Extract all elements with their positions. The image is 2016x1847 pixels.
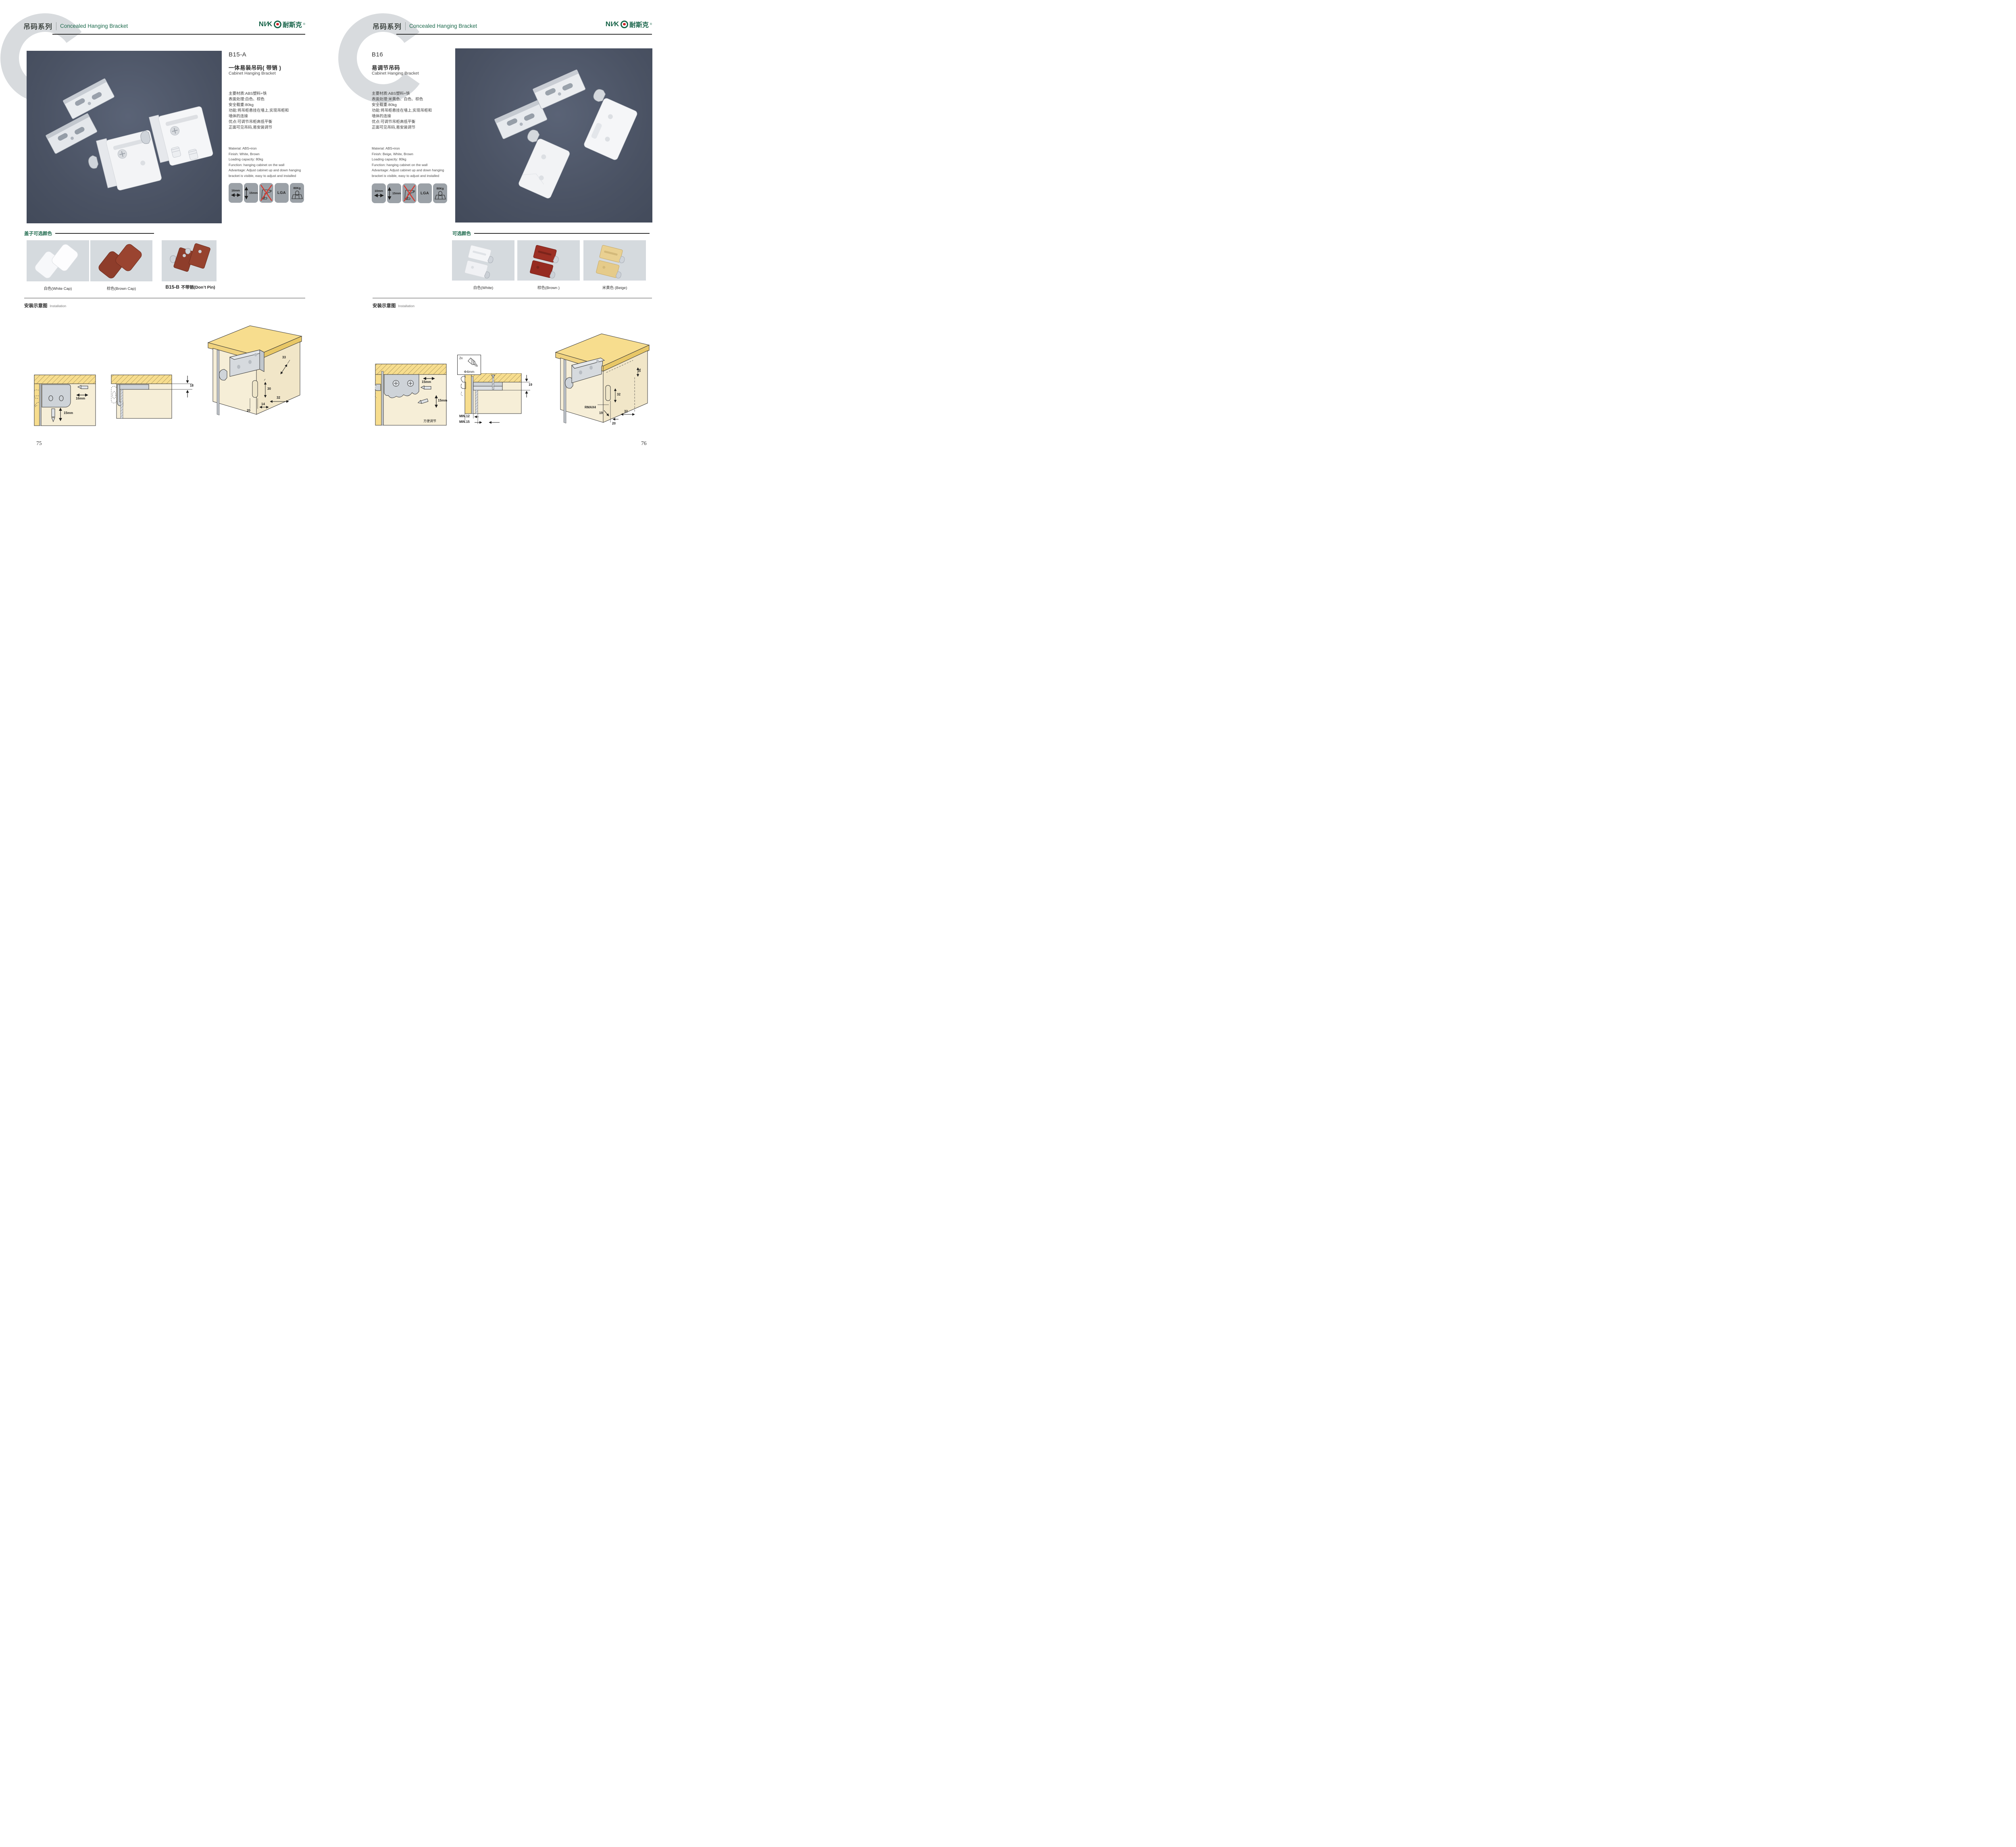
page-number: 76 (641, 440, 647, 447)
spec-line: bracket is visible, easy to adjust and i… (372, 173, 444, 179)
dim-label: 15mm (422, 380, 431, 384)
color-options-heading: 可选颜色 (452, 230, 650, 237)
dim-label: 19 (599, 411, 603, 415)
install-diagram-2: 19 MIN.12 MIN.15 (461, 373, 544, 426)
diagram-art (111, 372, 204, 422)
spec-line: 墙体的连接 (372, 114, 432, 119)
installation-heading: 安装示意图 Installation (373, 302, 414, 309)
install-diagram-1: 16mm 15mm (34, 371, 96, 427)
dim-label: 32 (624, 410, 628, 413)
specs-en: Material: ABS+iron Finish: Beige, White,… (372, 146, 444, 179)
spec-line: 表面处理:白色、棕色 (229, 97, 289, 102)
panel-width-icon: 16mm (229, 183, 243, 203)
load-capacity-icon: 80Kg (433, 183, 447, 203)
header-separator (405, 22, 406, 30)
screw-spec-box: 2x Φ4mm (457, 355, 481, 375)
brand-logo: NI∕K 耐斯克 ® (259, 19, 305, 29)
spec-line: bracket is visible, easy to adjust and i… (229, 173, 301, 179)
lga-cert-icon: LGA (275, 183, 289, 203)
spec-line: 优点:可调节吊柜高低平衡 (372, 119, 432, 125)
panel-width-label: 10mm (375, 189, 383, 193)
spec-line: 表面处理:米黄色、白色、棕色 (372, 97, 432, 102)
installation-heading: 安装示意图 Installation (24, 302, 66, 309)
section-divider (373, 298, 652, 298)
swatch-code: B15-B (165, 284, 179, 290)
swatch-caption: 米黄色 (Beige) (583, 285, 646, 290)
diagram-art (34, 371, 96, 427)
specs-cn: 主要材质:ABS塑料+铁 表面处理:米黄色、白色、棕色 安全载重:80kg 功能… (372, 91, 432, 131)
white-bracket-art (452, 240, 514, 281)
load-label: 80Kg (294, 186, 301, 190)
installation-cn: 安装示意图 (373, 302, 396, 309)
spec-line: 安全载重:80kg (229, 102, 289, 108)
spec-line: 正面可见吊码,易安装调节 (229, 125, 289, 131)
heading-rule (55, 233, 154, 233)
color-heading-label: 可选颜色 (452, 230, 471, 237)
heading-rule (474, 233, 650, 233)
product-code: B16 (372, 51, 383, 58)
spec-line: Loading capacity: 80kg (372, 157, 444, 162)
series-title-en: Concealed Hanging Bracket (60, 23, 128, 29)
diagram-art (461, 373, 544, 426)
lga-label: LGA (277, 191, 286, 195)
product-title-en: Cabinet Hanging Bracket (229, 71, 276, 76)
spec-line: Function: hanging cabinet on the wall (372, 162, 444, 168)
specs-cn: 主要材质:ABS塑料+铁 表面处理:白色、棕色 安全载重:80kg 功能:将吊柜… (229, 91, 289, 131)
swatch-caption-b15b: B15-B不带销(Don’t Pin) (157, 284, 223, 290)
white-cap-art (27, 240, 89, 281)
swatch-b15b (162, 240, 217, 281)
logo-target-icon (274, 21, 281, 28)
page-header: 吊码系列 Concealed Hanging Bracket (23, 21, 128, 31)
spec-line: 优点:可调节吊柜高低平衡 (229, 119, 289, 125)
red-cross-icon (259, 183, 273, 203)
product-photo-art (27, 51, 222, 223)
dim-label: 32 (617, 393, 621, 396)
feature-icons: 10mm 15mm LGA 80Kg (372, 183, 447, 203)
dim-label: 15mm (438, 399, 447, 402)
dim-label: 20 (247, 409, 250, 412)
dim-label: 19 (529, 383, 532, 387)
swatch-caption: 棕色(Brown ) (517, 285, 580, 290)
lga-label: LGA (421, 191, 429, 196)
spec-line: 功能:将吊柜悬挂在墙上,实现吊柜和 (229, 108, 289, 114)
series-title-cn: 吊码系列 (373, 21, 402, 31)
panel-width-label: 16mm (231, 189, 240, 192)
header-rule (396, 34, 652, 35)
swatch-white (452, 240, 514, 281)
horizontal-arrow-icon (230, 193, 242, 197)
page-left: 吊码系列 Concealed Hanging Bracket NI∕K 耐斯克 … (0, 0, 338, 462)
product-title-en: Cabinet Hanging Bracket (372, 71, 419, 76)
spec-line: 墙体的连接 (229, 114, 289, 119)
install-diagram-1: 15mm 15mm 方便调节 (375, 361, 447, 431)
swatch-brown-cap (90, 240, 152, 281)
series-title-en: Concealed Hanging Bracket (409, 23, 477, 29)
dim-label: 18 (190, 384, 194, 387)
screw-count: 2x (459, 356, 462, 360)
spec-line: 安全载重:80kg (372, 102, 432, 108)
brown-cap-art (90, 240, 152, 281)
brand-logo: NI∕K 耐斯克 ® (606, 19, 652, 29)
spec-line: 正面可见吊码,易安装调节 (372, 125, 432, 131)
spec-line: Function: hanging cabinet on the wall (229, 162, 301, 168)
spec-line: Advantage: Adjust cabinet up and down ha… (229, 168, 301, 173)
logo-latin: NI∕K (259, 20, 273, 28)
dim-label: 15mm (64, 411, 73, 415)
diagram-art (205, 322, 306, 422)
feature-icons: 16mm 15mm LGA 80Kg (229, 183, 304, 203)
panel-width-icon: 10mm (372, 183, 386, 203)
series-title-cn: 吊码系列 (23, 21, 52, 31)
logo-latin: NI∕K (606, 20, 619, 28)
load-glyph (435, 191, 446, 200)
dim-label: 30 (267, 387, 271, 391)
spec-line: Loading capacity: 80kg (229, 157, 301, 162)
logo-cn: 耐斯克 (283, 19, 302, 29)
swatch-brown (517, 240, 580, 281)
vertical-arrow-icon (244, 186, 248, 200)
swatch-label: 不带销(Don’t Pin) (181, 285, 215, 290)
install-diagram-3: 30 32 RMAX4 19 20 32 (554, 329, 652, 429)
spec-line: Advantage: Adjust cabinet up and down ha… (372, 168, 444, 173)
dim-label: 16mm (76, 397, 85, 400)
panel-height-icon: 15mm (244, 183, 258, 203)
header-rule (52, 34, 305, 35)
product-title-cn: 一体易装吊码( 带销 ) (229, 63, 281, 71)
spec-line: Material: ABS+iron (229, 146, 301, 152)
brown-bracket-art (517, 240, 580, 281)
catalog-spread: 吊码系列 Concealed Hanging Bracket NI∕K 耐斯克 … (0, 0, 676, 462)
color-heading-label: 盖子可选颜色 (24, 230, 52, 237)
logo-cn: 耐斯克 (629, 19, 649, 29)
product-photo-b16 (455, 48, 652, 223)
page-header: 吊码系列 Concealed Hanging Bracket (373, 21, 477, 31)
spec-line: 功能:将吊柜悬挂在墙上,实现吊柜和 (372, 108, 432, 114)
horizontal-arrow-icon (373, 193, 385, 198)
header-separator (56, 22, 56, 30)
spec-line: Material: ABS+iron (372, 146, 444, 152)
logo-target-icon (621, 21, 628, 28)
load-glyph (292, 191, 303, 200)
b15b-art (162, 240, 217, 281)
vertical-arrow-icon (387, 186, 392, 201)
installation-cn: 安装示意图 (24, 302, 48, 309)
spec-line: 主要材质:ABS塑料+铁 (372, 91, 432, 97)
dim-label: MIN.12 (459, 414, 470, 418)
spec-line: 主要材质:ABS塑料+铁 (229, 91, 289, 97)
registered-mark: ® (303, 23, 305, 26)
registered-mark: ® (650, 23, 652, 26)
dim-label: 33 (282, 356, 286, 359)
no-drill-icon (259, 183, 273, 203)
dim-label: 14 (261, 402, 265, 406)
panel-height-icon: 15mm (387, 183, 401, 203)
swatch-caption: 白色(White) (452, 285, 514, 290)
load-capacity-icon: 80Kg (290, 183, 304, 203)
swatch-beige (583, 240, 646, 281)
load-label: 80Kg (437, 187, 444, 190)
product-title-cn: 易调节吊码 (372, 63, 400, 71)
dim-label: 32 (277, 396, 280, 399)
no-drill-icon (402, 183, 417, 203)
red-cross-icon (402, 183, 417, 203)
product-code: B15-A (229, 51, 246, 58)
spec-line: Finish: White, Brown (229, 152, 301, 157)
product-photo-art (455, 48, 652, 223)
screw-diameter: Φ4mm (458, 370, 481, 374)
installation-en: Installation (50, 304, 67, 308)
section-divider (24, 298, 305, 298)
lga-cert-icon: LGA (418, 183, 432, 203)
dim-label: 20 (612, 422, 616, 425)
product-photo-b15a (27, 51, 222, 223)
note-label: 方便调节 (423, 419, 436, 423)
spec-line: Finish: Beige, White, Brown (372, 152, 444, 157)
dim-label: MIN.15 (459, 420, 470, 424)
diagram-art (554, 329, 652, 429)
panel-height-label: 15mm (392, 191, 401, 195)
swatch-caption: 棕色(Brown Cap) (90, 285, 152, 291)
color-options-heading: 盖子可选颜色 (24, 230, 154, 237)
install-diagram-3: 33 30 32 20 14 (205, 322, 306, 422)
install-diagram-2: 18 (111, 372, 204, 422)
page-number: 75 (36, 440, 42, 447)
beige-bracket-art (583, 240, 646, 281)
swatch-caption: 白色(White Cap) (27, 285, 89, 291)
installation-en: Installation (398, 304, 415, 308)
specs-en: Material: ABS+iron Finish: White, Brown … (229, 146, 301, 179)
dim-label: 30 (637, 368, 641, 372)
panel-height-label: 15mm (249, 191, 258, 195)
page-right: 吊码系列 Concealed Hanging Bracket NI∕K 耐斯克 … (338, 0, 676, 462)
dim-label: RMAX4 (585, 406, 596, 409)
swatch-white-cap (27, 240, 89, 281)
